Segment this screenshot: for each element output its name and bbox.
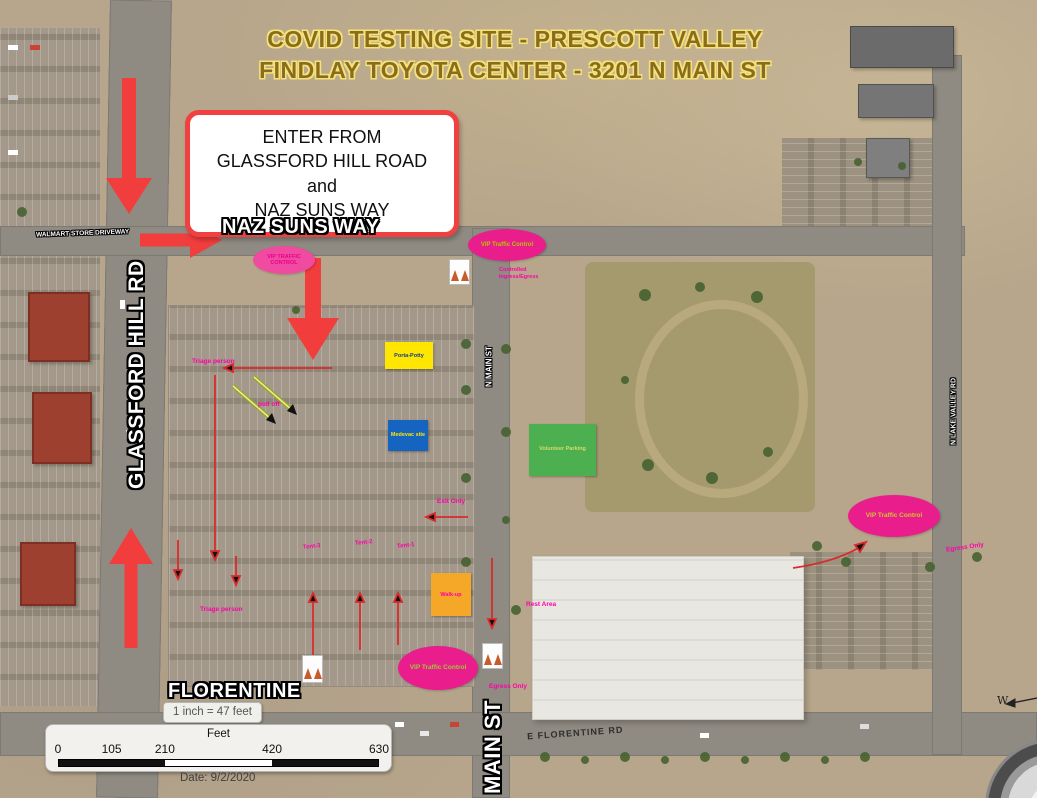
- cone-icon: [484, 650, 492, 665]
- warehouse-building-3: [866, 138, 910, 178]
- compass-west-arrow: [1006, 698, 1037, 707]
- vip-traffic-control-oval-north: VIP Traffic Control: [468, 229, 546, 261]
- zone-label: Walk-up: [440, 592, 461, 598]
- traffic-cones-icon-south: [482, 643, 503, 669]
- vip-oval-label: VIP Traffic Control: [481, 242, 533, 249]
- walk-up-zone: Walk-up: [431, 573, 471, 616]
- pull-off-label: pull off: [258, 401, 280, 408]
- cone-icon: [304, 664, 312, 679]
- zone-label: Volunteer Parking: [539, 446, 586, 453]
- n-lake-valley-road: [932, 55, 962, 755]
- controlled-ingress-egress-label: Controlled Ingress/Egress: [499, 267, 543, 281]
- scale-tick-420: 420: [262, 742, 282, 756]
- warehouse-building-1: [850, 26, 954, 68]
- traffic-cones-icon-southwest: [302, 655, 323, 683]
- scale-ratio-note: 1 inch = 47 feet: [163, 702, 262, 723]
- triage-person-label-lower: Triage person: [200, 606, 243, 613]
- zone-label: Medevac site: [391, 432, 425, 439]
- vip-traffic-control-oval-nazsuns: VIP TRAFFIC CONTROL: [253, 246, 315, 274]
- road-label-n-main-st: N MAIN ST: [485, 336, 494, 398]
- southeast-parking-lot: [790, 552, 935, 670]
- scale-tick-105: 105: [102, 742, 122, 756]
- northeast-parking-lot: [782, 138, 934, 232]
- road-label-naz-suns-way: NAZ SUNS WAY: [222, 216, 380, 239]
- map-title-line2: FINDLAY TOYOTA CENTER - 3201 N MAIN ST: [230, 57, 800, 84]
- scale-bar: Feet 0 105 210 420 630: [45, 724, 392, 772]
- medevac-zone: Medevac site: [388, 420, 428, 451]
- triage-person-label-upper: Triage person: [192, 358, 235, 365]
- scale-tick-0: 0: [55, 742, 62, 756]
- compass-west-label: W: [997, 694, 1008, 707]
- vip-oval-label: VIP Traffic Control: [410, 664, 467, 672]
- traffic-cones-icon-north: [449, 259, 470, 285]
- date-label: Date: 9/2/2020: [180, 772, 255, 784]
- scale-bar-segments: [58, 759, 379, 767]
- warehouse-building-2: [858, 84, 934, 118]
- zone-label: Porta-Potty: [394, 353, 424, 359]
- cone-icon: [314, 664, 322, 679]
- store-building-1: [28, 292, 90, 362]
- callout-line2: GLASSFORD HILL ROAD: [196, 149, 448, 173]
- egress-only-label-south: Egress Only: [489, 683, 527, 690]
- road-label-main-st: MAIN ST: [480, 692, 506, 798]
- vip-oval-label: VIP Traffic Control: [866, 512, 923, 520]
- scale-tick-630: 630: [369, 742, 389, 756]
- cone-icon: [494, 650, 502, 665]
- road-label-glassford-hill-rd: GLASSFORD HILL RD: [125, 279, 149, 489]
- store-building-3: [20, 542, 76, 606]
- dirt-track-oval: [635, 300, 808, 498]
- callout-line1: ENTER FROM: [196, 125, 448, 149]
- cone-icon: [461, 266, 469, 281]
- aerial-map: COVID TESTING SITE - PRESCOTT VALLEY FIN…: [0, 0, 1037, 798]
- scale-tick-210: 210: [155, 742, 175, 756]
- walmart-parking-lot-top: [0, 28, 100, 226]
- callout-line3: and: [196, 174, 448, 198]
- porta-potty-zone: Porta-Potty: [385, 342, 433, 369]
- findlay-toyota-center-building: [532, 556, 804, 720]
- road-label-florentine: FLORENTINE: [168, 680, 301, 703]
- rest-area-label: Rest Area: [526, 601, 556, 608]
- volunteer-parking-zone: Volunteer Parking: [529, 424, 596, 476]
- scale-unit-label: Feet: [46, 728, 391, 740]
- road-label-n-lake-valley-rd: N LAKE VALLEY RD: [951, 376, 958, 448]
- vip-oval-label: VIP TRAFFIC CONTROL: [253, 254, 315, 266]
- store-building-2: [32, 392, 92, 464]
- map-title-line1: COVID TESTING SITE - PRESCOTT VALLEY: [230, 26, 800, 53]
- vip-traffic-control-oval-east: VIP Traffic Control: [848, 495, 940, 537]
- cone-icon: [451, 266, 459, 281]
- vip-traffic-control-oval-south: VIP Traffic Control: [398, 646, 478, 690]
- exit-only-label: Exit Only: [437, 498, 465, 505]
